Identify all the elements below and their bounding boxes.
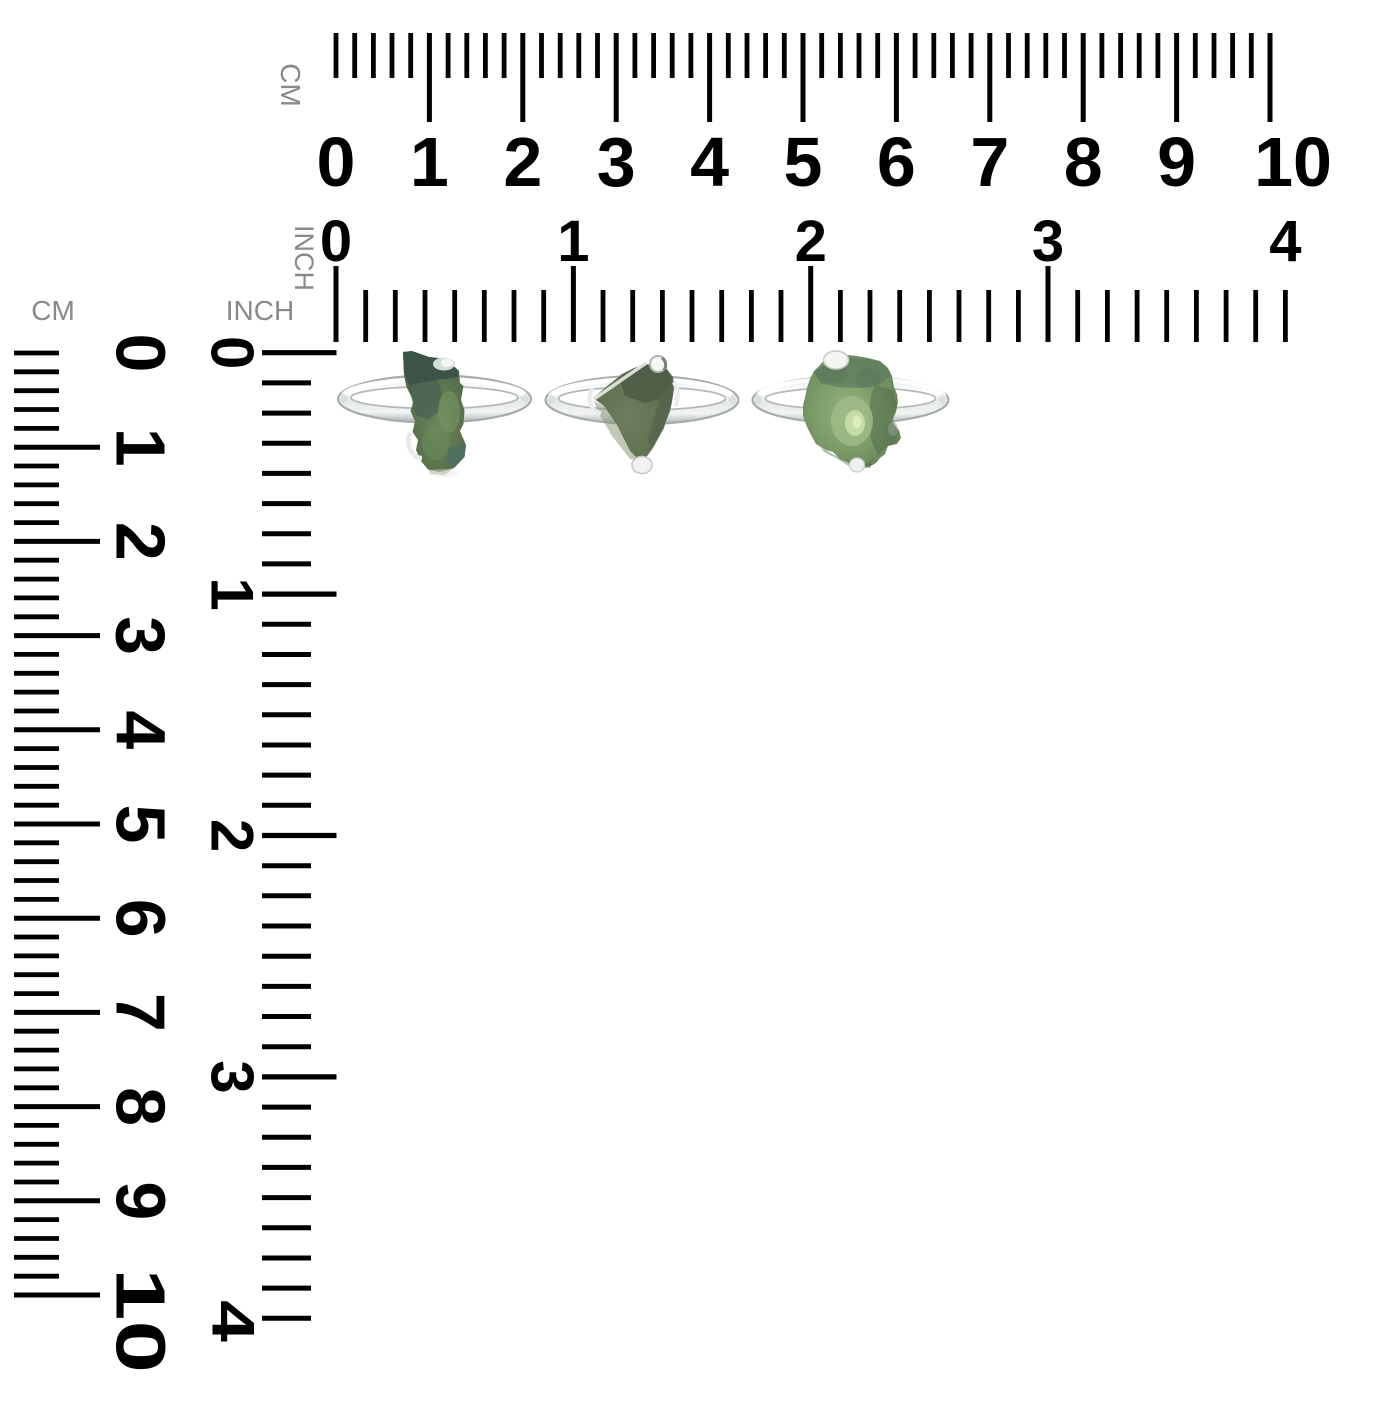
svg-text:4: 4 <box>199 1300 265 1342</box>
svg-text:2: 2 <box>795 209 827 274</box>
svg-text:8: 8 <box>1064 123 1103 201</box>
svg-text:6: 6 <box>102 899 180 938</box>
svg-text:3: 3 <box>199 1060 266 1093</box>
svg-text:3: 3 <box>1032 209 1064 274</box>
svg-text:9: 9 <box>102 1181 180 1220</box>
svg-text:7: 7 <box>970 123 1009 201</box>
svg-text:10: 10 <box>1254 123 1332 201</box>
svg-text:3: 3 <box>102 616 180 655</box>
svg-text:7: 7 <box>102 993 180 1032</box>
svg-text:0: 0 <box>199 336 266 369</box>
svg-text:0: 0 <box>317 123 356 201</box>
svg-text:CM: CM <box>31 295 75 326</box>
svg-text:INCH: INCH <box>289 225 319 291</box>
svg-text:1: 1 <box>102 428 180 467</box>
svg-text:3: 3 <box>597 123 636 201</box>
svg-text:8: 8 <box>102 1087 180 1126</box>
svg-text:0: 0 <box>320 209 352 274</box>
svg-text:5: 5 <box>102 805 180 844</box>
svg-text:9: 9 <box>1157 123 1196 201</box>
svg-text:10: 10 <box>101 1268 179 1373</box>
svg-text:6: 6 <box>877 123 916 201</box>
svg-text:0: 0 <box>102 334 180 373</box>
svg-text:2: 2 <box>199 819 266 852</box>
svg-text:1: 1 <box>199 577 266 610</box>
svg-text:CM: CM <box>275 63 306 107</box>
svg-text:5: 5 <box>784 123 823 201</box>
svg-text:1: 1 <box>557 209 589 274</box>
svg-text:2: 2 <box>102 522 180 561</box>
svg-text:1: 1 <box>410 123 449 201</box>
svg-text:4: 4 <box>690 123 729 201</box>
svg-text:4: 4 <box>102 710 180 749</box>
svg-text:4: 4 <box>1269 209 1301 274</box>
svg-text:2: 2 <box>503 123 542 201</box>
svg-text:INCH: INCH <box>226 295 294 326</box>
